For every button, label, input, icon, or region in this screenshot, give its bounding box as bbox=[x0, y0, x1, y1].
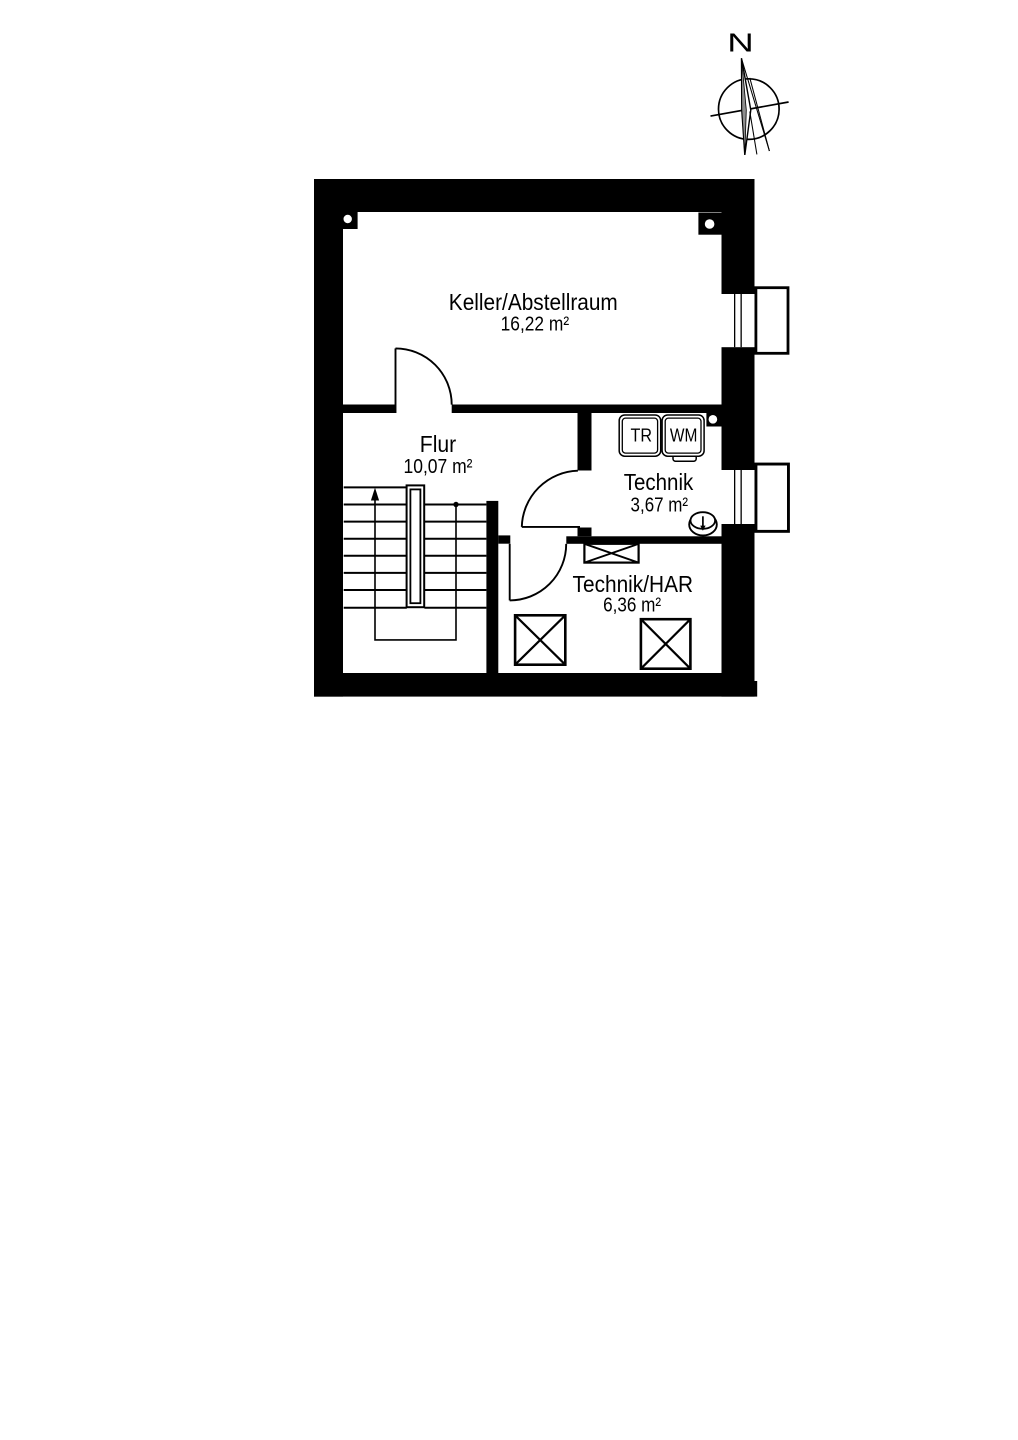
svg-text:Keller/Abstellraum: Keller/Abstellraum bbox=[449, 289, 618, 315]
svg-text:3,67 m²: 3,67 m² bbox=[631, 494, 689, 517]
svg-text:16,22 m²: 16,22 m² bbox=[501, 313, 570, 336]
svg-text:Technik: Technik bbox=[624, 469, 694, 495]
svg-text:N: N bbox=[727, 28, 754, 58]
svg-text:6,36 m²: 6,36 m² bbox=[603, 593, 661, 616]
svg-text:WM: WM bbox=[670, 426, 698, 446]
svg-text:TR: TR bbox=[631, 426, 653, 446]
svg-text:10,07 m²: 10,07 m² bbox=[404, 455, 473, 478]
svg-text:Flur: Flur bbox=[420, 431, 457, 457]
